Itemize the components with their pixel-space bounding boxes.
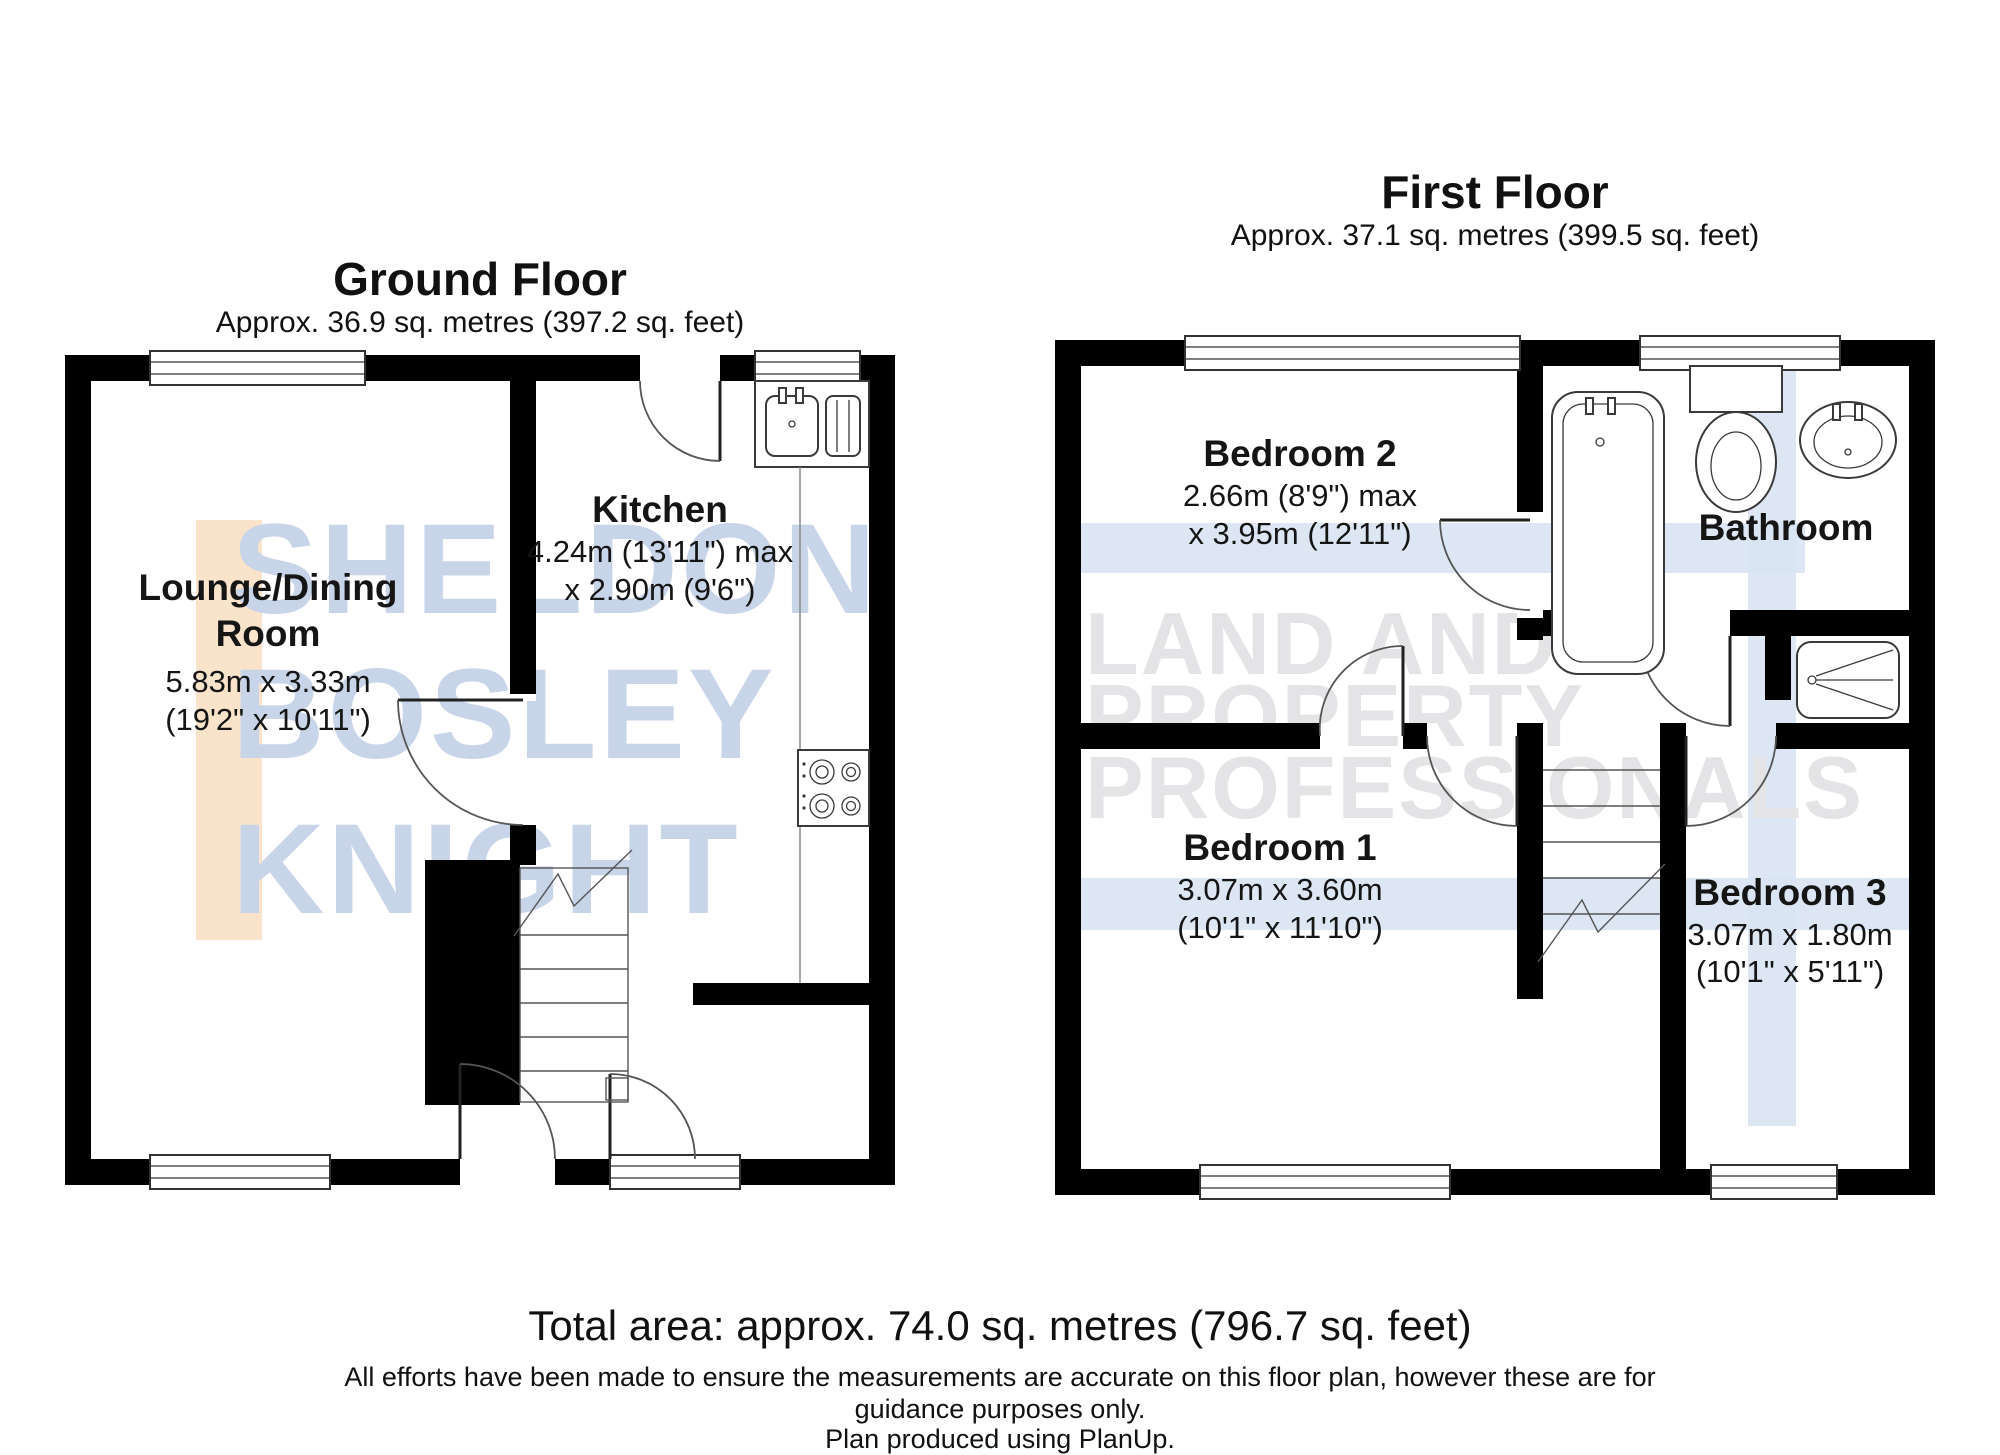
disclaimer-line3: Plan produced using PlanUp.	[0, 1424, 2000, 1455]
staircase-ground	[514, 850, 632, 1102]
kitchen-back-door-arc	[640, 381, 720, 461]
lounge-kitchen-door-arc	[398, 694, 536, 825]
ground-floor-plan: Lounge/Dining Room 5.83m x 3.33m (19'2" …	[65, 351, 895, 1189]
bedroom1-window	[1200, 1165, 1450, 1199]
kitchen-dims-line2: x 2.90m (9'6")	[565, 572, 756, 607]
bedroom3-window	[1711, 1165, 1837, 1199]
floorplan-page: SHELDON BOSLEY KNIGHT LAND AND PROPERTY …	[0, 0, 2000, 1455]
toilet	[1690, 366, 1782, 512]
rear-glazed-door	[610, 1155, 740, 1189]
kitchen-dims-line1: 4.24m (13'11") max	[527, 534, 794, 569]
ground-floor-area: Approx. 36.9 sq. metres (397.2 sq. feet)	[80, 306, 880, 340]
wash-basin	[1800, 402, 1896, 478]
kitchen-window	[755, 351, 860, 385]
landing-cupboard-door-arc	[1440, 512, 1543, 618]
first-floor-walls	[1055, 340, 1935, 1195]
staircase-first	[1538, 770, 1665, 962]
lounge-front-window	[150, 1155, 330, 1189]
bedroom3-dims-line2: (10'1" x 5'11")	[1696, 954, 1884, 989]
ground-floor-title: Ground Floor	[80, 252, 880, 306]
hob	[798, 750, 869, 826]
back-door-arc	[610, 1074, 695, 1159]
disclaimer-line1: All efforts have been made to ensure the…	[0, 1362, 2000, 1393]
first-floor-area: Approx. 37.1 sq. metres (399.5 sq. feet)	[1095, 219, 1895, 253]
bedroom1-dims-line1: 3.07m x 3.60m	[1177, 872, 1382, 907]
kitchen-label: Kitchen	[592, 489, 728, 530]
bedroom1-door-arc	[1427, 736, 1517, 826]
shower-tray	[1797, 642, 1899, 718]
bedroom3-label: Bedroom 3	[1693, 872, 1886, 913]
bedroom2-window	[1185, 336, 1520, 370]
lounge-label: Lounge/Dining	[139, 567, 398, 608]
first-floor-plan: Bedroom 2 2.66m (8'9") max x 3.95m (12'1…	[1055, 336, 1935, 1199]
bedroom1-label: Bedroom 1	[1183, 827, 1376, 868]
bathtub	[1552, 392, 1664, 674]
kitchen-sink	[755, 381, 869, 467]
lounge-dims-imperial: (19'2" x 10'11")	[165, 702, 371, 737]
disclaimer-line2: guidance purposes only.	[0, 1394, 2000, 1425]
lounge-label-line2: Room	[216, 613, 321, 654]
bedroom3-dims-line1: 3.07m x 1.80m	[1687, 917, 1892, 952]
bedroom2-dims-line2: x 3.95m (12'11")	[1188, 516, 1411, 551]
bedroom2-label: Bedroom 2	[1203, 433, 1396, 474]
bathroom-window	[1640, 336, 1840, 370]
lounge-dims-metric: 5.83m x 3.33m	[165, 664, 370, 699]
lounge-window	[150, 351, 365, 385]
first-floor-title: First Floor	[1095, 165, 1895, 219]
total-area-text: Total area: approx. 74.0 sq. metres (796…	[0, 1302, 2000, 1350]
bathroom-label: Bathroom	[1699, 507, 1874, 548]
bedroom2-door-arc	[1320, 646, 1403, 736]
bedroom2-dims-line1: 2.66m (8'9") max	[1183, 478, 1417, 513]
ground-floor-walls	[65, 355, 895, 1185]
bedroom3-door-arc	[1686, 736, 1776, 826]
bedroom1-dims-line2: (10'1" x 11'10")	[1177, 910, 1383, 945]
